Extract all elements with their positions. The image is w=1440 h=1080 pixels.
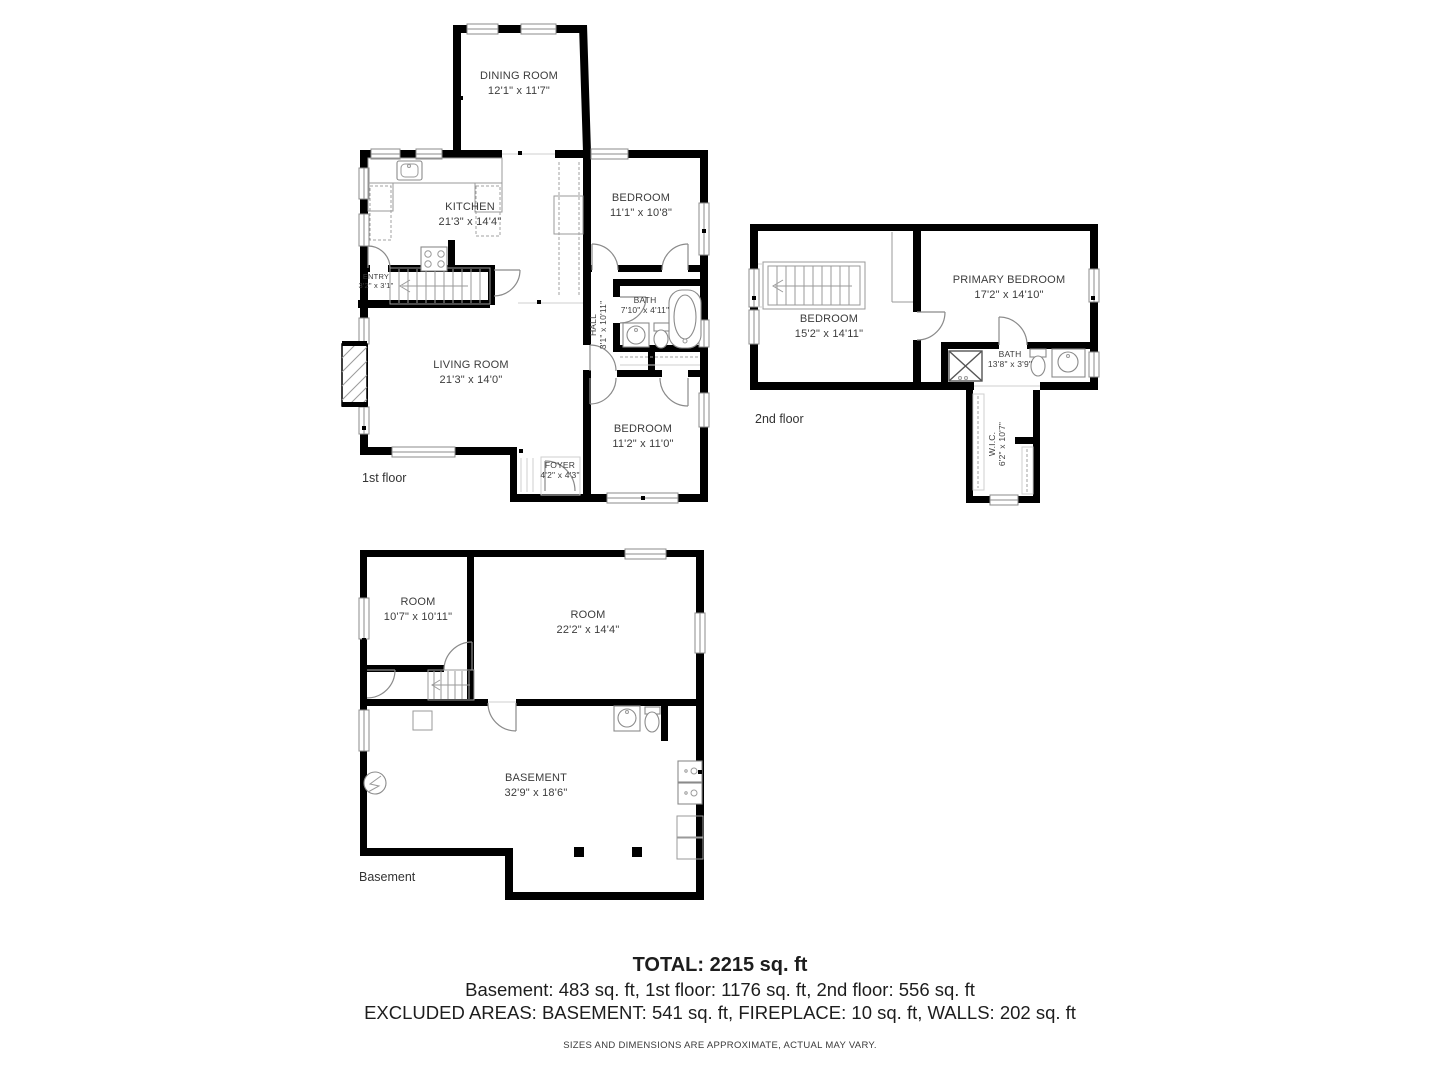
room-label-basement-room-large: ROOM 22'2" x 14'4" [557, 608, 620, 638]
room-name: BASEMENT [505, 771, 568, 786]
room-label-basement-main: BASEMENT 32'9" x 18'6" [505, 771, 568, 801]
room-name: BEDROOM [612, 422, 673, 437]
kitchen-sink-icon [397, 161, 422, 180]
room-name: BEDROOM [610, 191, 672, 206]
bathtub-icon [669, 290, 701, 348]
summary-floor-areas: Basement: 483 sq. ft, 1st floor: 1176 sq… [0, 978, 1440, 1001]
laundry-sinks-icon [678, 761, 702, 804]
second-floor-plan [749, 224, 1099, 505]
room-name: BATH [621, 295, 670, 305]
room-name: ENTRY [359, 272, 394, 281]
room-dims: 21'3" x 14'0" [433, 373, 509, 388]
room-dims: 11'2" x 11'0" [612, 437, 673, 452]
fireplace-icon [342, 341, 367, 407]
basement-sink-icon [614, 706, 640, 731]
room-label-basement-room-small: ROOM 10'7" x 10'11" [384, 595, 452, 625]
room-label-bedroom-top: BEDROOM 11'1" x 10'8" [610, 191, 672, 221]
room-label-foyer: FOYER 4'2" x 4'3" [540, 460, 579, 480]
room-name: KITCHEN [439, 200, 502, 215]
room-dims: 4'2" x 4'3" [540, 470, 579, 480]
floor-label-basement: Basement [359, 870, 415, 884]
room-label-bedroom-second: BEDROOM 15'2" x 14'11" [795, 312, 863, 342]
room-dims: 11'1" x 10'8" [610, 206, 672, 221]
room-label-bedroom-bottom: BEDROOM 11'2" x 11'0" [612, 422, 673, 452]
room-label-hall: HALL 3'1" x 10'11" [588, 301, 608, 350]
floor-label-first: 1st floor [362, 471, 406, 485]
stairs-icon [390, 268, 490, 304]
room-dims: 22'2" x 14'4" [557, 623, 620, 638]
room-dims: 13'8" x 3'9" [988, 359, 1032, 369]
room-name: W.I.C. [987, 422, 997, 466]
room-label-wic: W.I.C. 6'2" x 10'7" [987, 422, 1007, 466]
stairs-icon [758, 262, 865, 309]
room-label-bath-second: BATH 13'8" x 3'9" [988, 349, 1032, 369]
room-dims: 10'7" x 10'11" [384, 610, 452, 625]
room-label-kitchen: KITCHEN 21'3" x 14'4" [439, 200, 502, 230]
room-dims: 15'2" x 14'11" [795, 327, 863, 342]
summary-total: TOTAL: 2215 sq. ft [0, 952, 1440, 978]
room-dims: 21'3" x 14'4" [439, 215, 502, 230]
floorplan-page: DINING ROOM 12'1" x 11'7" KITCHEN 21'3" … [0, 0, 1440, 1080]
bath-sink-icon [1052, 349, 1085, 377]
room-name: BATH [988, 349, 1032, 359]
room-label-entry: ENTRY 3'2" x 3'1" [359, 272, 394, 290]
room-dims: 17'2" x 14'10" [953, 288, 1066, 303]
room-dims: 32'9" x 18'6" [505, 786, 568, 801]
room-dims: 12'1" x 11'7" [480, 84, 558, 99]
room-dims: 3'1" x 10'11" [598, 301, 608, 350]
summary-block: TOTAL: 2215 sq. ft Basement: 483 sq. ft,… [0, 952, 1440, 1051]
bedroom-closet-line [892, 232, 913, 302]
post-icon [632, 847, 642, 857]
post-icon [574, 847, 584, 857]
toilet-icon [654, 323, 669, 348]
room-name: DINING ROOM [480, 69, 558, 84]
electrical-panel-icon [364, 772, 386, 794]
room-name: FOYER [540, 460, 579, 470]
room-name: HALL [588, 301, 598, 350]
room-label-living: LIVING ROOM 21'3" x 14'0" [433, 358, 509, 388]
post-icon [413, 711, 432, 730]
room-label-primary-bedroom: PRIMARY BEDROOM 17'2" x 14'10" [953, 273, 1066, 303]
room-label-dining: DINING ROOM 12'1" x 11'7" [480, 69, 558, 99]
room-dims: 6'2" x 10'7" [997, 422, 1007, 466]
room-label-bath-first: BATH 7'10" x 4'11" [621, 295, 670, 315]
room-name: LIVING ROOM [433, 358, 509, 373]
room-name: PRIMARY BEDROOM [953, 273, 1066, 288]
room-name: ROOM [384, 595, 452, 610]
summary-excluded-areas: EXCLUDED AREAS: BASEMENT: 541 sq. ft, FI… [0, 1001, 1440, 1024]
bath-sink-icon [623, 323, 649, 347]
room-name: ROOM [557, 608, 620, 623]
toilet-icon [1030, 349, 1046, 376]
floorplan-drawing [0, 0, 1440, 1080]
shower-icon [949, 351, 982, 381]
summary-disclaimer: SIZES AND DIMENSIONS ARE APPROXIMATE, AC… [0, 1040, 1440, 1051]
room-dims: 7'10" x 4'11" [621, 305, 670, 315]
toilet-icon [645, 707, 660, 732]
floor-label-second: 2nd floor [755, 412, 804, 426]
stove-icon [421, 247, 447, 271]
room-dims: 3'2" x 3'1" [359, 281, 394, 290]
room-name: BEDROOM [795, 312, 863, 327]
